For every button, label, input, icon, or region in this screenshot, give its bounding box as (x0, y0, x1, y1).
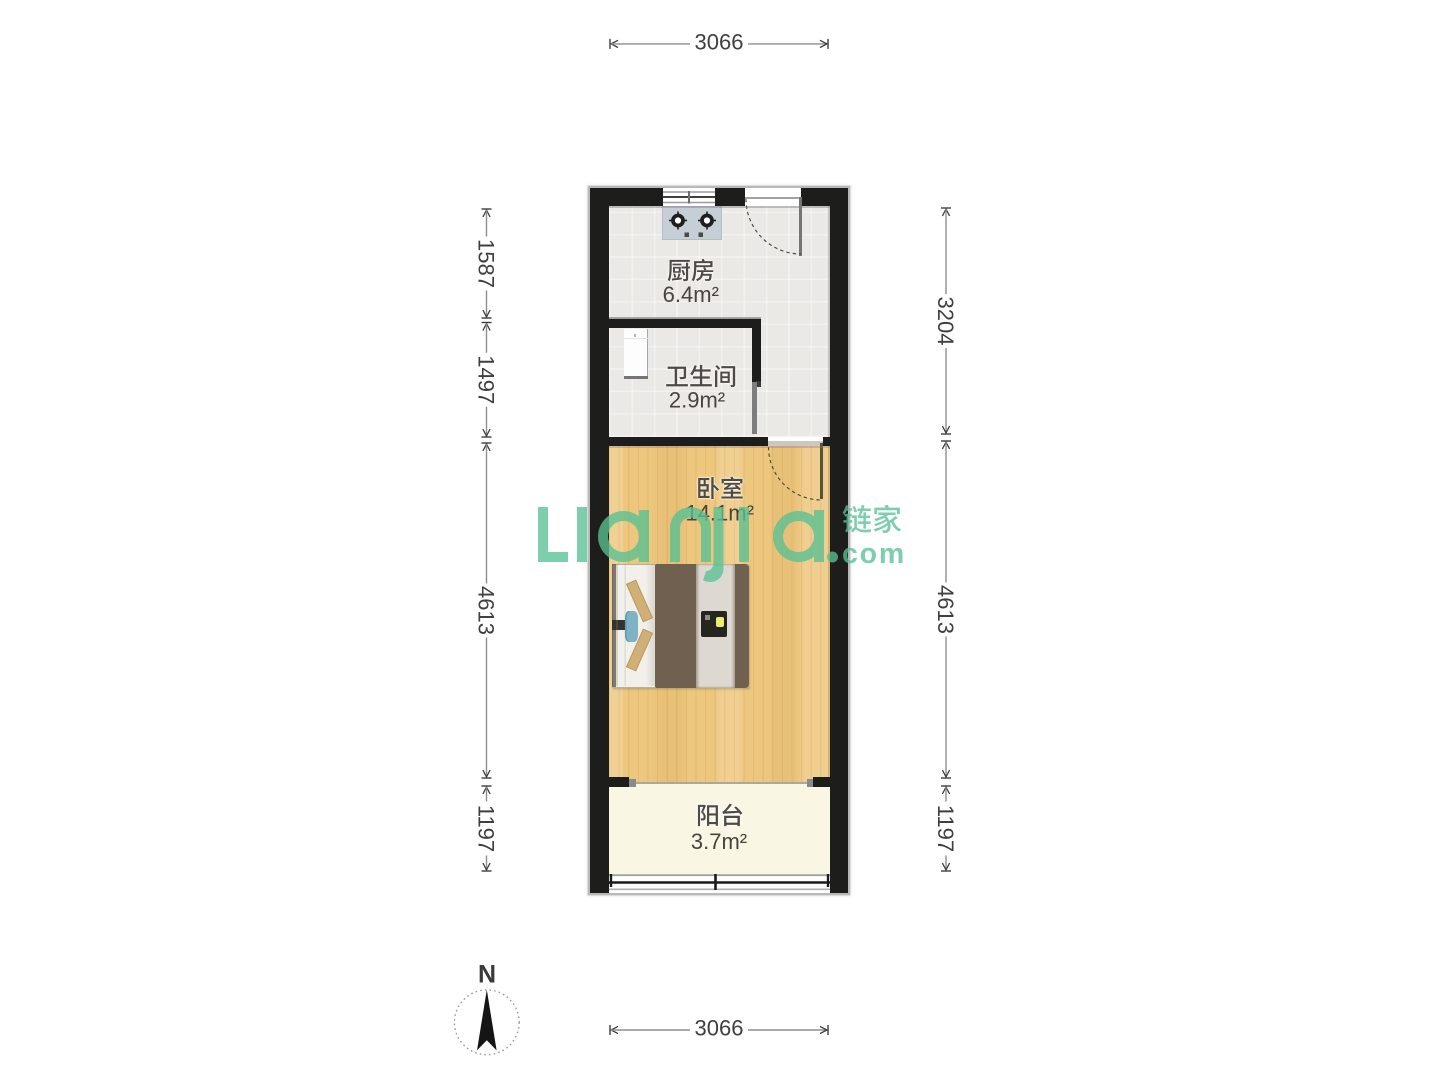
svg-text:com: com (842, 538, 906, 570)
